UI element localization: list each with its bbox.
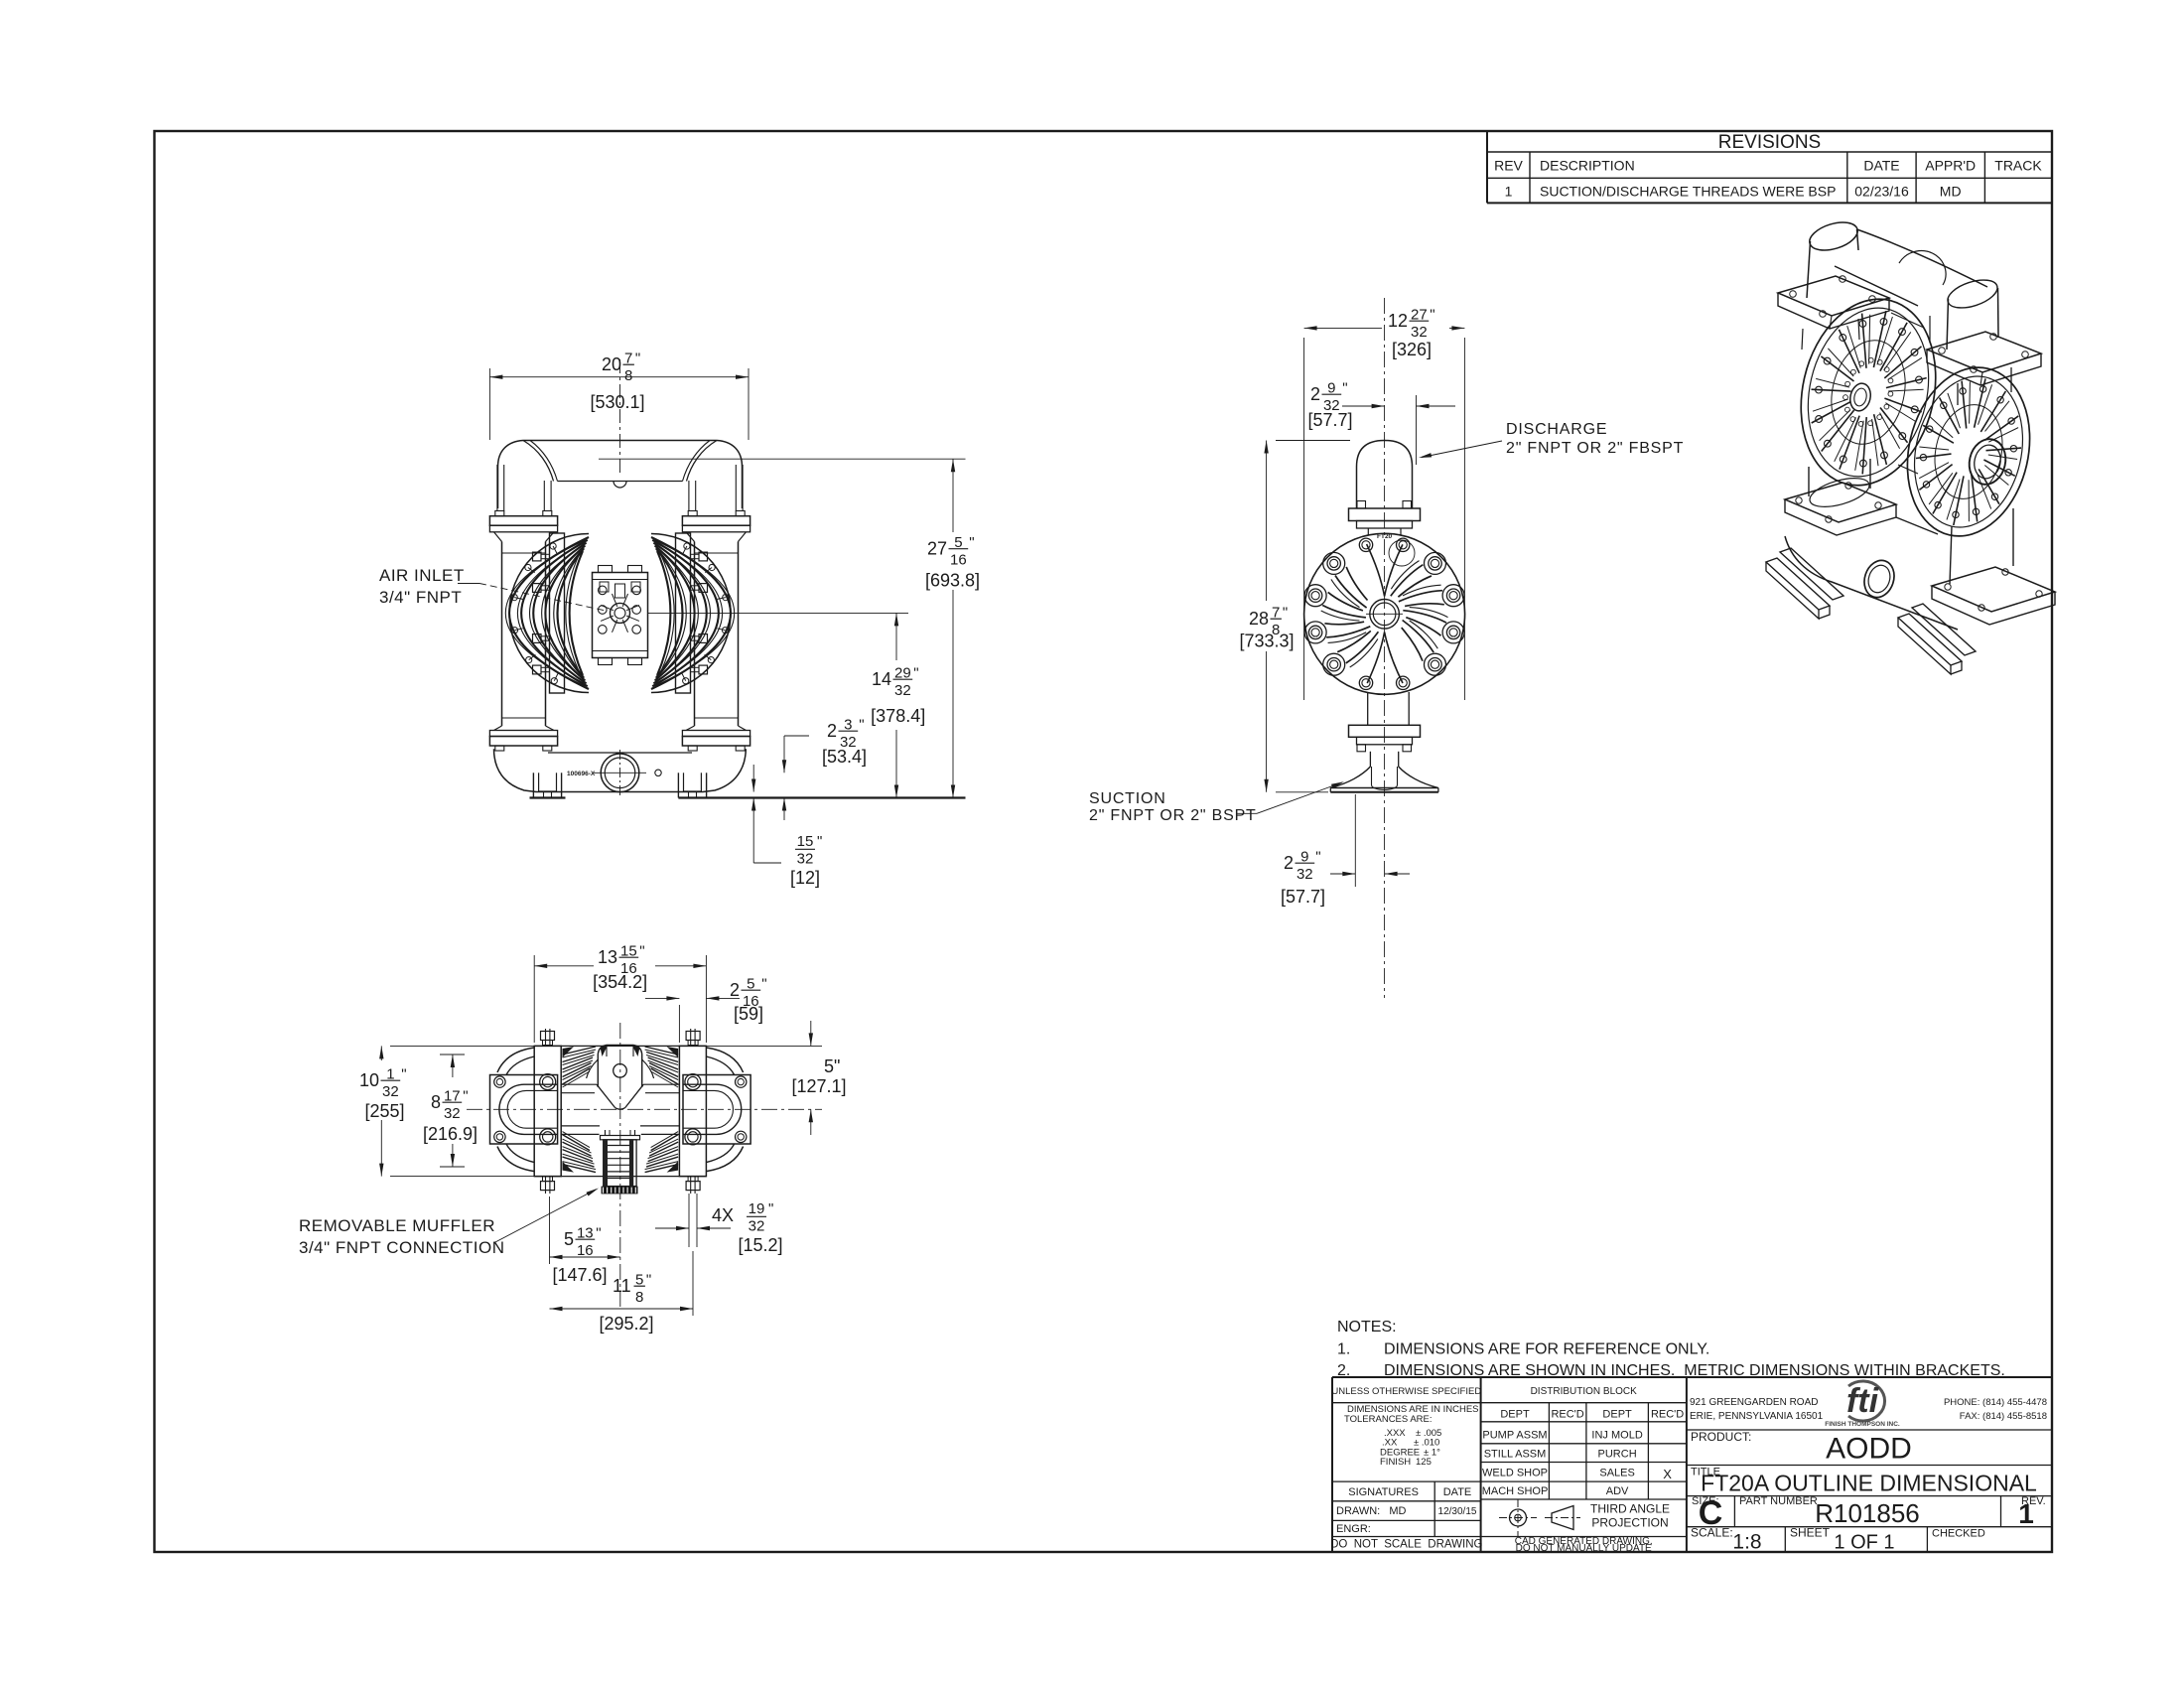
svg-text:AODD: AODD <box>1826 1433 1912 1466</box>
svg-text:16: 16 <box>577 1242 594 1259</box>
svg-text:DEPT: DEPT <box>1602 1409 1632 1421</box>
svg-text:": " <box>817 833 822 850</box>
svg-text:[530.1]: [530.1] <box>590 392 644 412</box>
svg-text:DIMENSIONS ARE FOR REFERENCE O: DIMENSIONS ARE FOR REFERENCE ONLY. <box>1384 1341 1709 1358</box>
svg-text:8: 8 <box>624 367 632 384</box>
svg-text:15: 15 <box>797 833 814 850</box>
svg-text:DESCRIPTION: DESCRIPTION <box>1540 158 1635 174</box>
svg-text:REMOVABLE MUFFLER: REMOVABLE MUFFLER <box>299 1216 495 1235</box>
svg-text:": " <box>1342 380 1347 397</box>
svg-text:[693.8]: [693.8] <box>925 571 980 591</box>
svg-text:1.: 1. <box>1337 1341 1350 1358</box>
svg-text:32: 32 <box>894 682 911 699</box>
svg-text:32: 32 <box>797 851 814 868</box>
svg-text:PHONE: (814) 455-4478: PHONE: (814) 455-4478 <box>1944 1397 2047 1408</box>
svg-text:REC'D: REC'D <box>1551 1409 1583 1421</box>
svg-text:R101856: R101856 <box>1815 1498 1920 1528</box>
svg-text:": " <box>1430 307 1434 324</box>
svg-text:13: 13 <box>598 947 617 967</box>
svg-text:[59]: [59] <box>734 1004 763 1024</box>
svg-text:FT20A OUTLINE DIMENSIONAL: FT20A OUTLINE DIMENSIONAL <box>1701 1471 2037 1496</box>
svg-text:": " <box>635 351 640 367</box>
svg-text:16: 16 <box>950 552 967 569</box>
svg-text:SUCTION: SUCTION <box>1089 790 1166 807</box>
svg-text:DIMENSIONS ARE SHOWN IN INCHES: DIMENSIONS ARE SHOWN IN INCHES. METRIC D… <box>1384 1362 2005 1379</box>
svg-text:[216.9]: [216.9] <box>423 1124 478 1144</box>
svg-text:STILL ASSM: STILL ASSM <box>1484 1449 1547 1461</box>
svg-text:SUCTION/DISCHARGE THREADS WERE: SUCTION/DISCHARGE THREADS WERE BSP <box>1540 184 1836 200</box>
svg-text:": " <box>463 1088 468 1105</box>
svg-text:TRACK: TRACK <box>1994 158 2042 174</box>
svg-text:SCALE:: SCALE: <box>1691 1526 1733 1540</box>
svg-text:1 OF 1: 1 OF 1 <box>1834 1532 1894 1554</box>
svg-text:TOLERANCES ARE:: TOLERANCES ARE: <box>1344 1414 1433 1425</box>
svg-text:27: 27 <box>927 539 947 559</box>
svg-text:SIGNATURES: SIGNATURES <box>1348 1486 1419 1498</box>
svg-text:[15.2]: [15.2] <box>738 1235 782 1255</box>
svg-text:": " <box>401 1066 406 1083</box>
svg-text:12/30/15: 12/30/15 <box>1438 1506 1477 1517</box>
svg-text:": " <box>859 717 864 734</box>
svg-text:[326]: [326] <box>1392 340 1432 359</box>
svg-text:ENGR:: ENGR: <box>1336 1523 1371 1535</box>
svg-text:100696-X: 100696-X <box>567 771 596 777</box>
svg-text:REVISIONS: REVISIONS <box>1718 132 1821 153</box>
svg-text:PROJECTION: PROJECTION <box>1591 1516 1668 1530</box>
svg-text:": " <box>913 665 918 682</box>
svg-text:32: 32 <box>1411 324 1428 341</box>
svg-text:10: 10 <box>359 1070 379 1090</box>
svg-text:20: 20 <box>602 354 621 374</box>
svg-text:REC'D: REC'D <box>1651 1409 1684 1421</box>
svg-text:921 GREENGARDEN ROAD: 921 GREENGARDEN ROAD <box>1690 1397 1818 1408</box>
svg-text:DEPT: DEPT <box>1500 1409 1530 1421</box>
svg-text:3/4" FNPT CONNECTION: 3/4" FNPT CONNECTION <box>299 1238 504 1257</box>
svg-text:[378.4]: [378.4] <box>871 706 925 726</box>
svg-text:CHECKED: CHECKED <box>1932 1528 1985 1540</box>
svg-text:FAX: (814) 455-8518: FAX: (814) 455-8518 <box>1960 1411 2047 1422</box>
svg-text:WELD SHOP: WELD SHOP <box>1482 1468 1548 1479</box>
svg-text:PUMP ASSM: PUMP ASSM <box>1482 1430 1547 1442</box>
svg-text:DISCHARGE: DISCHARGE <box>1506 421 1607 438</box>
svg-text:DO NOT SCALE DRAWING: DO NOT SCALE DRAWING <box>1330 1539 1482 1551</box>
svg-text:32: 32 <box>1297 866 1313 883</box>
svg-text:DO NOT MANUALLY UPDATE: DO NOT MANUALLY UPDATE <box>1516 1543 1652 1554</box>
svg-text:[127.1]: [127.1] <box>791 1076 846 1096</box>
svg-text:19: 19 <box>749 1200 765 1217</box>
svg-text:14: 14 <box>872 669 891 689</box>
svg-text:DISTRIBUTION BLOCK: DISTRIBUTION BLOCK <box>1531 1386 1638 1397</box>
svg-text:2: 2 <box>730 980 740 1000</box>
svg-text:INJ MOLD: INJ MOLD <box>1591 1430 1642 1442</box>
svg-text:2: 2 <box>1310 384 1320 404</box>
svg-text:125: 125 <box>1416 1457 1432 1468</box>
svg-text:FINISH THOMPSON INC.: FINISH THOMPSON INC. <box>1825 1421 1900 1428</box>
svg-text:12: 12 <box>1388 311 1408 331</box>
svg-text:MD: MD <box>1940 184 1962 200</box>
svg-text:FT20: FT20 <box>1377 533 1393 540</box>
svg-text:SHEET: SHEET <box>1790 1526 1831 1540</box>
svg-text:PRODUCT:: PRODUCT: <box>1691 1430 1751 1444</box>
svg-text:DATE: DATE <box>1443 1486 1472 1498</box>
svg-text:1: 1 <box>1505 184 1513 200</box>
svg-text:": " <box>1283 605 1288 622</box>
svg-text:REV: REV <box>1494 158 1523 174</box>
svg-text:2" FNPT OR 2" FBSPT: 2" FNPT OR 2" FBSPT <box>1506 440 1684 457</box>
svg-text:fti: fti <box>1846 1382 1880 1420</box>
svg-text:PART NUMBER: PART NUMBER <box>1739 1495 1818 1507</box>
svg-text:4X: 4X <box>712 1205 734 1225</box>
svg-text:[255]: [255] <box>364 1101 404 1121</box>
svg-text:THIRD ANGLE: THIRD ANGLE <box>1590 1502 1670 1516</box>
svg-text:2: 2 <box>1284 853 1294 873</box>
svg-text:32: 32 <box>382 1083 399 1100</box>
svg-text:PURCH: PURCH <box>1598 1449 1637 1461</box>
svg-text:NOTES:: NOTES: <box>1337 1319 1397 1336</box>
svg-text:SALES: SALES <box>1599 1468 1634 1479</box>
svg-text:[57.7]: [57.7] <box>1307 410 1352 430</box>
svg-text:[354.2]: [354.2] <box>593 972 647 992</box>
svg-text:02/23/16: 02/23/16 <box>1854 184 1909 200</box>
svg-text:2" FNPT OR 2" BSPT: 2" FNPT OR 2" BSPT <box>1089 807 1257 824</box>
svg-text:ERIE, PENNSYLVANIA 16501: ERIE, PENNSYLVANIA 16501 <box>1690 1411 1824 1422</box>
svg-text:[57.7]: [57.7] <box>1281 887 1325 907</box>
svg-text:[733.3]: [733.3] <box>1239 632 1294 651</box>
svg-text:UNLESS OTHERWISE SPECIFIED: UNLESS OTHERWISE SPECIFIED <box>1331 1386 1481 1397</box>
svg-text:3/4" FNPT: 3/4" FNPT <box>379 588 462 607</box>
svg-text:DATE: DATE <box>1863 158 1899 174</box>
svg-text:2: 2 <box>827 721 837 741</box>
svg-text:": " <box>761 976 766 993</box>
svg-text:[53.4]: [53.4] <box>822 747 867 767</box>
svg-text:1: 1 <box>2018 1498 2034 1529</box>
svg-text:1:8: 1:8 <box>1732 1531 1761 1554</box>
svg-text:": " <box>596 1225 601 1242</box>
svg-text:5: 5 <box>564 1229 574 1249</box>
svg-text:": " <box>768 1200 773 1217</box>
svg-text:[147.6]: [147.6] <box>552 1265 607 1285</box>
svg-text:[295.2]: [295.2] <box>599 1314 653 1334</box>
svg-text:8: 8 <box>431 1092 441 1112</box>
svg-text:AIR INLET: AIR INLET <box>379 566 465 585</box>
svg-text:2.: 2. <box>1337 1362 1350 1379</box>
svg-text:FINISH: FINISH <box>1380 1457 1411 1468</box>
svg-text:": " <box>1315 849 1320 866</box>
svg-text:DRAWN: MD: DRAWN: MD <box>1336 1505 1407 1517</box>
svg-text:32: 32 <box>749 1218 765 1235</box>
svg-text:8: 8 <box>635 1289 643 1306</box>
svg-text:5": 5" <box>824 1056 840 1076</box>
svg-text:APPR'D: APPR'D <box>1925 158 1976 174</box>
svg-text:11: 11 <box>613 1276 631 1296</box>
svg-text:": " <box>646 1272 651 1289</box>
svg-text:": " <box>969 534 974 551</box>
svg-text:X: X <box>1663 1467 1672 1481</box>
svg-text:32: 32 <box>444 1105 461 1122</box>
svg-text:MACH SHOP: MACH SHOP <box>1482 1485 1549 1497</box>
svg-text:ADV: ADV <box>1606 1485 1629 1497</box>
svg-text:[12]: [12] <box>790 868 820 888</box>
svg-text:": " <box>639 943 644 960</box>
svg-text:28: 28 <box>1249 609 1269 629</box>
